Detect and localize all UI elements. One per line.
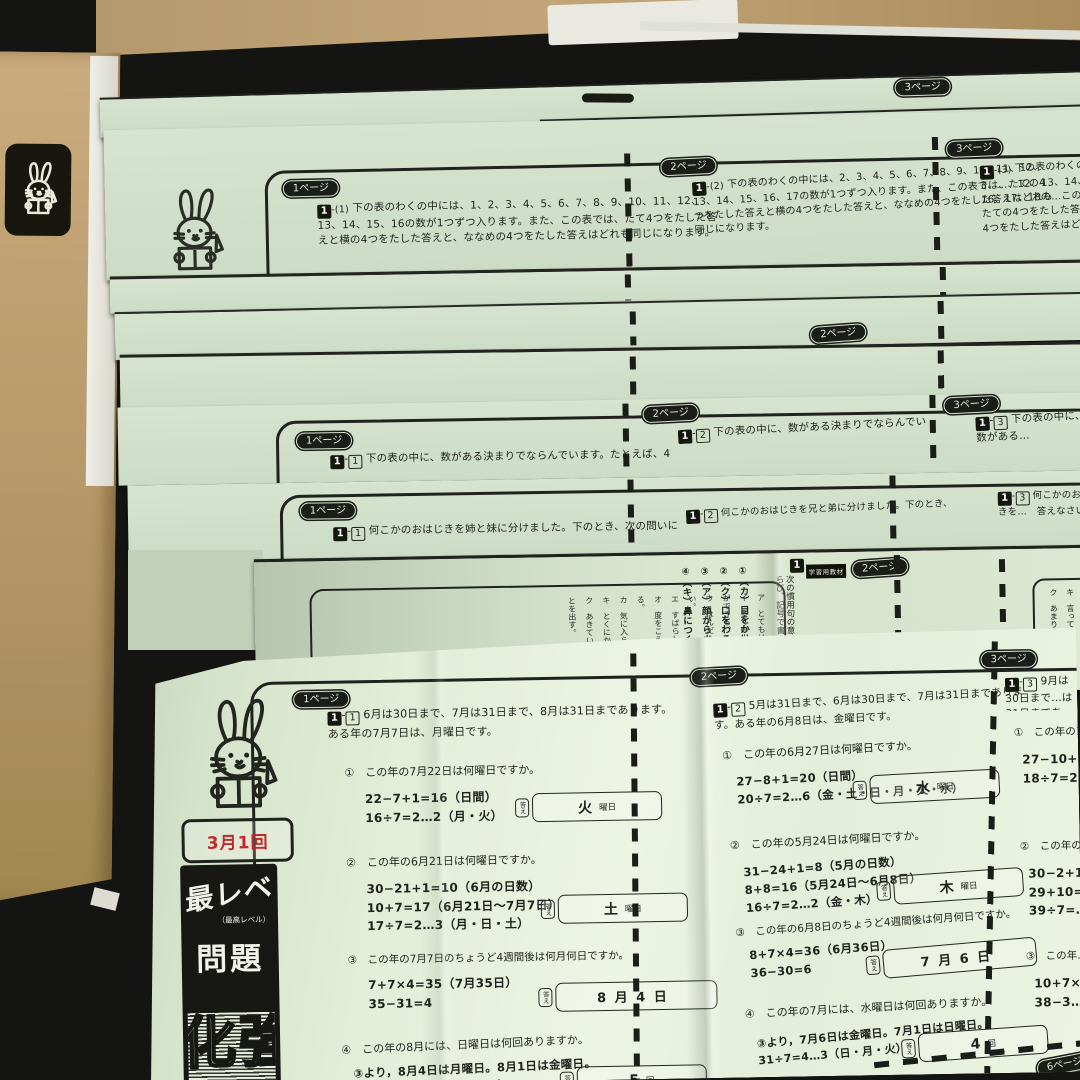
work-line: 29+10=… <box>1029 882 1080 902</box>
answer-unit: 曜日 <box>936 779 954 792</box>
work-line: 17÷7=2…3（月・日・土） <box>367 914 561 936</box>
answer-tab: 答え <box>538 988 552 1007</box>
cut-line <box>622 404 629 474</box>
work-line: 39÷7=… <box>1029 900 1080 920</box>
answer-unit: 曜日 <box>960 879 978 892</box>
answer-tab: 答え <box>515 798 529 817</box>
problem-number: 1 <box>1005 678 1019 692</box>
answer-2: 答え 土曜日 <box>541 893 688 925</box>
answer-1: 答え 火曜日 <box>515 791 662 823</box>
page1-badge: 1ページ <box>300 502 356 520</box>
page2-badge: 2ページ <box>810 323 867 344</box>
brand-line3: 強化 <box>188 1012 276 1080</box>
cut-line <box>625 274 631 300</box>
page2-badge: 2ページ <box>642 403 699 423</box>
rabbit-book-icon <box>180 697 294 817</box>
work-line: 10+7=17（6月21日〜7月7日） <box>367 895 561 917</box>
page1-badge: 1ページ <box>283 179 340 197</box>
answer-tab: 答え <box>560 1072 574 1080</box>
rabbit-book-icon <box>153 188 235 278</box>
cut-line <box>630 311 637 345</box>
problem-number: 1 <box>790 559 804 573</box>
problem-subnumber: -(1) <box>331 203 349 217</box>
page3-badge: 3ページ <box>946 139 1003 158</box>
problem-subnumber: 1 <box>346 711 360 725</box>
answer-value: 木 <box>939 876 954 897</box>
sairebe-brand-logo: 最レベ （最高レベル） 問題 強化 <box>180 864 281 1080</box>
photo-stacked-worksheets: 3ページ 1ページ 1-(1) 下の表のわくの中には、1、2、3、4、5、6、7… <box>0 0 1080 1080</box>
problem-subnumber: 1 <box>351 527 365 541</box>
answer-box: 火曜日 <box>532 791 662 822</box>
sheet-margin-shadow <box>128 550 263 650</box>
cut-line <box>938 301 945 339</box>
problem-subnumber: 2 <box>703 509 718 524</box>
answer-value: 土 <box>604 898 618 918</box>
problem-number: 1 <box>686 510 701 525</box>
session-date-text: 3月1回 <box>207 827 269 853</box>
cut-line <box>627 480 634 550</box>
work-line: 27−10+1＝… <box>1022 749 1080 769</box>
brand-line3-panel: 強化 <box>188 1012 276 1080</box>
problem-number: 1 <box>327 712 341 726</box>
question-2: ② この年の… <box>1020 837 1080 853</box>
answer-tab: 答え <box>852 780 867 800</box>
answer-value: 4 <box>970 1036 981 1053</box>
answer-tab: 答え <box>541 900 555 919</box>
problem-subnumber: 3 <box>1015 491 1029 505</box>
cut-line <box>940 267 946 295</box>
page2-badge: 2ページ <box>660 157 717 177</box>
answer-value: 7 月 6 日 <box>920 945 993 970</box>
problem-text: 下の表の中に、数がある… <box>976 410 1080 445</box>
badge-fragment <box>582 93 634 102</box>
answer-tab: 答え <box>901 1039 916 1059</box>
problem-number: 1 <box>980 165 995 180</box>
page1-badge: 1ページ <box>296 432 352 450</box>
session-date-stamp: 3月1回 <box>181 817 294 863</box>
work-line: 18÷7=2… <box>1023 768 1080 788</box>
problem-subnumber: 2 <box>731 702 746 717</box>
answer-value: 水 <box>915 777 930 798</box>
page3-badge: 3ページ <box>943 395 1000 415</box>
work-line: 30−2+1＝… <box>1028 863 1080 883</box>
work-2: 30−2+1＝… 29+10=… 39÷7=… <box>1028 863 1080 920</box>
envelope-rabbit-stamp <box>5 143 72 236</box>
brand-name: 最レベ <box>180 864 279 920</box>
question-1: ① この年の10… <box>1014 723 1080 739</box>
publisher-label: 学習用教材 <box>806 564 846 579</box>
problem-number: 1 <box>692 182 707 197</box>
problem-text: 1-3 何こかのおはじきを… 答えなさい。 <box>998 488 1080 519</box>
problem-subnumber: 1 <box>348 455 362 469</box>
problem-number: 1 <box>317 205 331 219</box>
problem-text: 下の表のわくの中には、1、2、3、4、5、6、7、8、9、10、11、12、13… <box>317 195 717 247</box>
problem-subnumber: 2 <box>696 429 711 444</box>
problem-text: 1-3 下の表の中に、数がある… <box>975 408 1080 446</box>
problem-subnumber: -(3) <box>994 163 1012 177</box>
paper-scrap <box>90 887 120 911</box>
problem-1-3-text: 1-(3) 下の表のわくの中には、3、…、12、13、14、15、16、17、1… <box>980 157 1080 237</box>
page3-badge: 3ページ <box>980 650 1036 668</box>
problem-subnumber: 3 <box>993 416 1008 431</box>
cut-line <box>938 350 945 394</box>
question-3: ③ この年… <box>1026 948 1080 964</box>
work-line: 38−3… <box>1034 992 1080 1012</box>
problem-number: 1 <box>333 527 347 541</box>
worksheet-magic-square: 1ページ 1-(1) 下の表のわくの中には、1、2、3、4、5、6、7、8、9、… <box>104 110 1080 280</box>
answer-value: 火 <box>578 797 592 817</box>
cut-line <box>630 357 637 397</box>
brand-line2: 問題 <box>181 933 279 980</box>
problem-number: 1 <box>330 455 344 469</box>
work-2: 30−21+1=10（6月の日数） 10+7=17（6月21日〜7月7日） 17… <box>366 877 560 936</box>
work-line: 10+7×… <box>1034 973 1080 993</box>
cut-line <box>932 137 941 259</box>
worksheet-calendar-main: 3月1回 最レベ （最高レベル） 問題 強化 1ページ 1-1 6月は30日まで… <box>124 628 1080 1080</box>
problem-subnumber: -(2) <box>706 180 724 194</box>
problem-1-1-text: 1-(1) 下の表のわくの中には、1、2、3、4、5、6、7、8、9、10、11… <box>317 193 720 248</box>
cut-line <box>889 475 896 545</box>
page3-badge: 3ページ <box>894 78 951 97</box>
answer-unit: 回 <box>646 1074 655 1080</box>
answer-tab: 答え <box>865 955 881 975</box>
answer-box: 土曜日 <box>558 893 688 924</box>
problem-number: 1 <box>998 492 1012 506</box>
problem-subnumber: 3 <box>1023 677 1037 691</box>
work-1: 27−10+1＝… 18÷7=2… <box>1022 749 1080 788</box>
answer-unit: 曜日 <box>599 800 616 812</box>
work-3: 10+7×… 38−3… <box>1034 973 1080 1011</box>
rabbit-book-icon <box>13 154 64 227</box>
problem-header-text: 6月は30日まで、7月は31日まで、8月は31日まであります。ある年の7月7日は… <box>328 703 673 741</box>
cut-line <box>929 395 936 469</box>
problem-1-3-header: 1-3 9月は30日まで…は31日まであり… <box>1005 674 1080 711</box>
problem-number: 1 <box>975 417 990 432</box>
problem-number: 1 <box>678 429 693 444</box>
worksheet-number-pattern: 1ページ 1-1 下の表の中に、数がある決まりでならんでいます。たとえば、4 2… <box>117 392 1080 485</box>
publisher-text: 学習用教材 <box>809 566 844 577</box>
answer-tab: 答え <box>876 881 891 901</box>
